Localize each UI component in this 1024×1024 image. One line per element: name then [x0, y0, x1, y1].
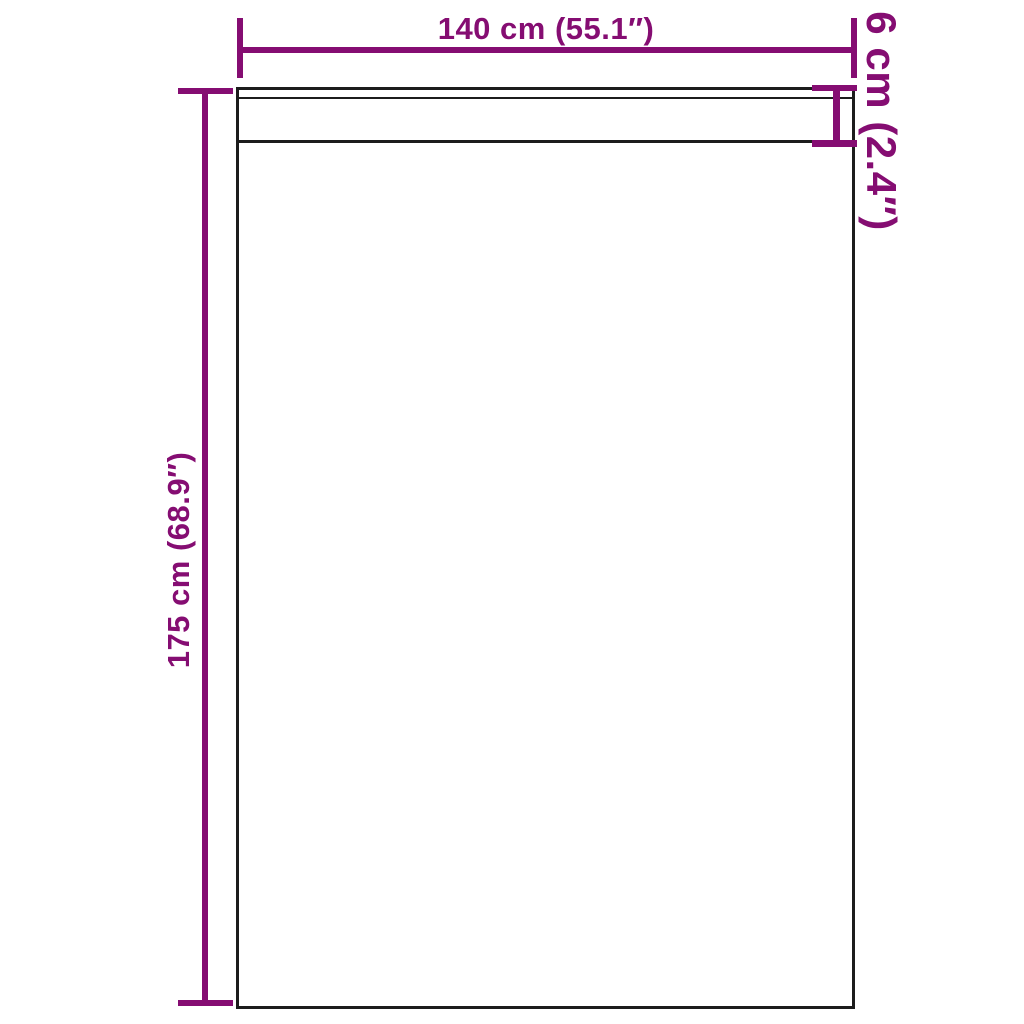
height-dimension-label: 175 cm (68.9″) — [161, 452, 197, 669]
width-dimension-label: 140 cm (55.1″) — [438, 11, 655, 47]
dimension-diagram: 140 cm (55.1″) 175 cm (68.9″) 6 cm (2.4″… — [0, 0, 1024, 1024]
hem-seam-line-upper — [237, 97, 854, 99]
product-panel-outline — [236, 87, 855, 1009]
hem-dimension-line — [833, 88, 840, 144]
hem-dimension-label: 6 cm (2.4″) — [857, 11, 905, 230]
height-dimension-line — [202, 88, 208, 1006]
height-dimension-end-cap-top — [178, 88, 233, 94]
hem-dimension-end-cap-bottom — [812, 140, 857, 147]
width-dimension-end-cap-left — [237, 18, 243, 78]
height-dimension-end-cap-bottom — [178, 1000, 233, 1006]
width-dimension-line — [237, 47, 857, 53]
hem-dimension-end-cap-top — [812, 85, 857, 91]
hem-seam-line-lower — [237, 140, 854, 143]
